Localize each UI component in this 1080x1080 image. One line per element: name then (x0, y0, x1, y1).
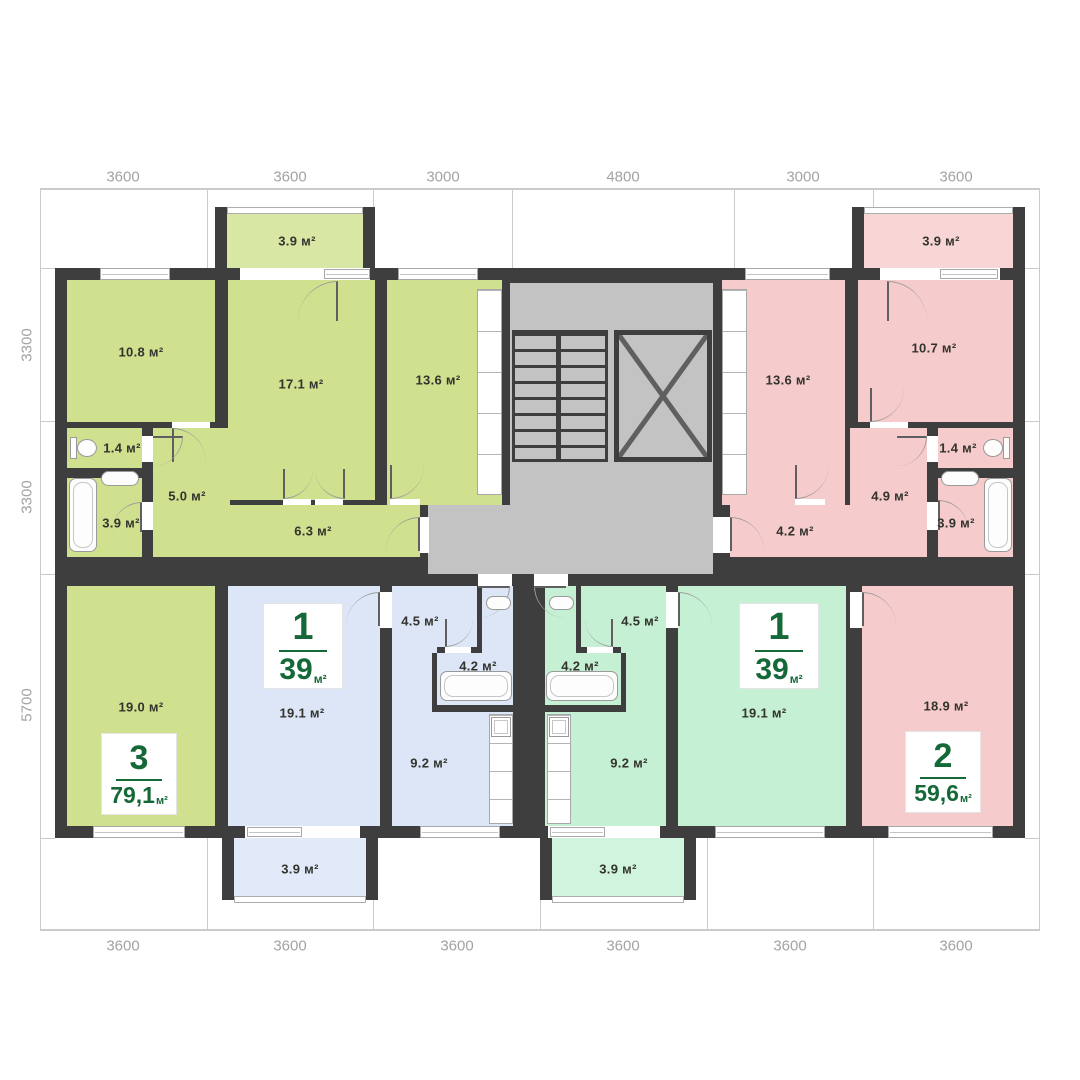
room-area-label: 3.9 м² (281, 862, 318, 877)
balcony-wall (1013, 207, 1025, 268)
apartment-area: 39 (279, 655, 312, 685)
balcony-wall (363, 207, 375, 268)
wall-segment (468, 268, 758, 284)
door-opening (850, 592, 862, 628)
wall-segment (621, 653, 626, 712)
balcony-wall (215, 207, 227, 268)
room-area-label: 10.8 м² (119, 345, 164, 360)
balcony-glazing (552, 896, 684, 903)
washbasin-icon (941, 471, 979, 486)
room-area-label: 3.9 м² (922, 234, 959, 249)
room-area-label: 19.0 м² (119, 700, 164, 715)
room-area-label: 4.2 м² (776, 524, 813, 539)
room-area-label: 10.7 м² (912, 341, 957, 356)
washbasin-icon (486, 596, 511, 610)
door-opening (870, 422, 908, 428)
window (940, 269, 998, 279)
window (888, 826, 993, 838)
room-area-label: 9.2 м² (410, 756, 447, 771)
badge-divider (116, 779, 162, 781)
balcony-glazing (227, 207, 363, 214)
door-opening (795, 499, 825, 505)
room-area-label: 4.2 м² (459, 659, 496, 674)
room-area-label: 5.0 м² (168, 489, 205, 504)
wall-segment (432, 653, 437, 712)
window (93, 826, 185, 838)
room-area-label: 3.9 м² (599, 862, 636, 877)
staircase-divider (556, 330, 561, 462)
room-area-label: 1.4 м² (939, 441, 976, 456)
grid-tick (40, 268, 55, 269)
elevator-shaft (614, 330, 712, 462)
door-opening (713, 517, 730, 553)
door-opening (315, 499, 343, 505)
bathtub-icon (69, 478, 97, 552)
door-opening (927, 436, 938, 462)
room-area-label: 4.5 м² (401, 614, 438, 629)
door-opening (445, 647, 471, 653)
window (398, 268, 478, 280)
grid-tick (40, 421, 55, 422)
room-area-label: 17.1 м² (279, 377, 324, 392)
apartment-area-unit: м² (156, 796, 168, 807)
room-area-label: 4.5 м² (621, 614, 658, 629)
apt1r-corridor-strip (626, 653, 666, 712)
wardrobe-icon (722, 289, 747, 495)
grid-tick (1025, 421, 1040, 422)
window (247, 827, 302, 837)
apartment-badge-1-left: 1 39м² (264, 604, 342, 688)
grid-tick (207, 188, 208, 268)
grid-tick (40, 574, 55, 575)
door-opening (478, 574, 512, 586)
door-opening (172, 422, 210, 428)
room-area-label: 13.6 м² (766, 373, 811, 388)
balcony-glazing (864, 207, 1013, 214)
balcony-wall (222, 838, 234, 900)
apartment-area-unit: м² (960, 794, 972, 805)
grid-tick (873, 838, 874, 930)
grid-tick (40, 838, 55, 839)
door-opening (142, 436, 153, 462)
grid-tick (734, 188, 735, 268)
door-opening (420, 517, 429, 553)
dim-top-5: 3000 (771, 169, 835, 186)
room-area-label: 4.2 м² (561, 659, 598, 674)
dim-bottom-2: 3600 (258, 938, 322, 955)
badge-divider (755, 650, 803, 652)
washbasin-icon (549, 596, 574, 610)
room-area-label: 9.2 м² (610, 756, 647, 771)
window (715, 826, 825, 838)
washbasin-icon (101, 471, 139, 486)
room-area-label: 3.9 м² (102, 516, 139, 531)
dim-top-4: 4800 (591, 169, 655, 186)
grid-tick (1025, 268, 1040, 269)
door-opening (587, 647, 613, 653)
dim-bottom-4: 3600 (591, 938, 655, 955)
frame-right-line (1039, 188, 1040, 930)
balcony-wall (684, 838, 696, 900)
door-opening (390, 499, 420, 505)
apartment-number: 2 (934, 739, 953, 773)
bathtub-icon (546, 671, 618, 701)
room-area-label: 4.9 м² (871, 489, 908, 504)
wardrobe-icon (477, 289, 502, 495)
toilet-icon (1003, 437, 1010, 459)
dim-top-3: 3000 (411, 169, 475, 186)
kitchen-sink-icon (549, 717, 569, 737)
balcony-wall (540, 838, 552, 900)
grid-tick (512, 188, 513, 268)
dim-bottom-5: 3600 (758, 938, 822, 955)
bathtub-icon (984, 478, 1012, 552)
apartment-badge-1-right: 1 39м² (740, 604, 818, 688)
grid-tick (1025, 574, 1040, 575)
dim-left-2: 3300 (19, 465, 36, 529)
window (745, 268, 830, 280)
balcony-wall (852, 207, 864, 268)
grid-tick (1025, 838, 1040, 839)
apartment-number: 1 (292, 608, 313, 646)
room-area-label: 3.9 м² (937, 516, 974, 531)
wall-segment (576, 586, 581, 647)
window (420, 826, 500, 838)
room-area-label: 19.1 м² (742, 706, 787, 721)
door-opening (666, 592, 678, 628)
kitchen-sink-icon (491, 717, 511, 737)
entrance-vestibule (428, 505, 713, 574)
dim-top-1: 3600 (91, 169, 155, 186)
toilet-icon (983, 439, 1003, 457)
balcony-wall (366, 838, 378, 900)
dim-left-1: 3300 (19, 313, 36, 377)
room-area-label: 19.1 м² (280, 706, 325, 721)
window (100, 268, 170, 280)
apartment-badge-2: 2 59,6м² (906, 732, 980, 812)
frame-left-line (40, 188, 41, 930)
dim-bottom-3: 3600 (425, 938, 489, 955)
toilet-icon (77, 439, 97, 457)
room-area-label: 1.4 м² (103, 441, 140, 456)
dim-top-2: 3600 (258, 169, 322, 186)
balcony-glazing (234, 896, 366, 903)
dim-left-3: 5700 (19, 673, 36, 737)
window (550, 827, 605, 837)
apartment-number: 1 (768, 608, 789, 646)
badge-divider (279, 650, 327, 652)
apartment-number: 3 (130, 741, 149, 775)
room-area-label: 3.9 м² (278, 234, 315, 249)
elevator-x-icon (619, 335, 707, 457)
floor-plan-canvas: 3600 3600 3000 4800 3000 3600 3600 3600 … (0, 0, 1080, 1080)
bathtub-icon (440, 671, 512, 701)
toilet-icon (70, 437, 77, 459)
apartment-badge-3: 3 79,1м² (102, 734, 176, 814)
dim-top-6: 3600 (924, 169, 988, 186)
apt1l-corridor-strip (392, 653, 432, 712)
badge-divider (920, 777, 966, 779)
apartment-area-unit: м² (314, 673, 327, 685)
apartment-area: 39 (755, 655, 788, 685)
room-area-label: 13.6 м² (416, 373, 461, 388)
door-opening (142, 502, 153, 530)
door-opening (534, 574, 568, 586)
dim-bottom-6: 3600 (924, 938, 988, 955)
dim-bottom-1: 3600 (91, 938, 155, 955)
apartment-area-unit: м² (790, 673, 803, 685)
window (324, 269, 370, 279)
door-opening (283, 499, 311, 505)
door-opening (380, 592, 392, 628)
room-area-label: 18.9 м² (924, 699, 969, 714)
apartment-area: 79,1 (110, 784, 155, 807)
room-area-label: 6.3 м² (294, 524, 331, 539)
grid-tick (207, 838, 208, 930)
grid-tick (707, 838, 708, 930)
apartment-area: 59,6 (914, 782, 959, 805)
frame-top-line (40, 188, 1040, 190)
